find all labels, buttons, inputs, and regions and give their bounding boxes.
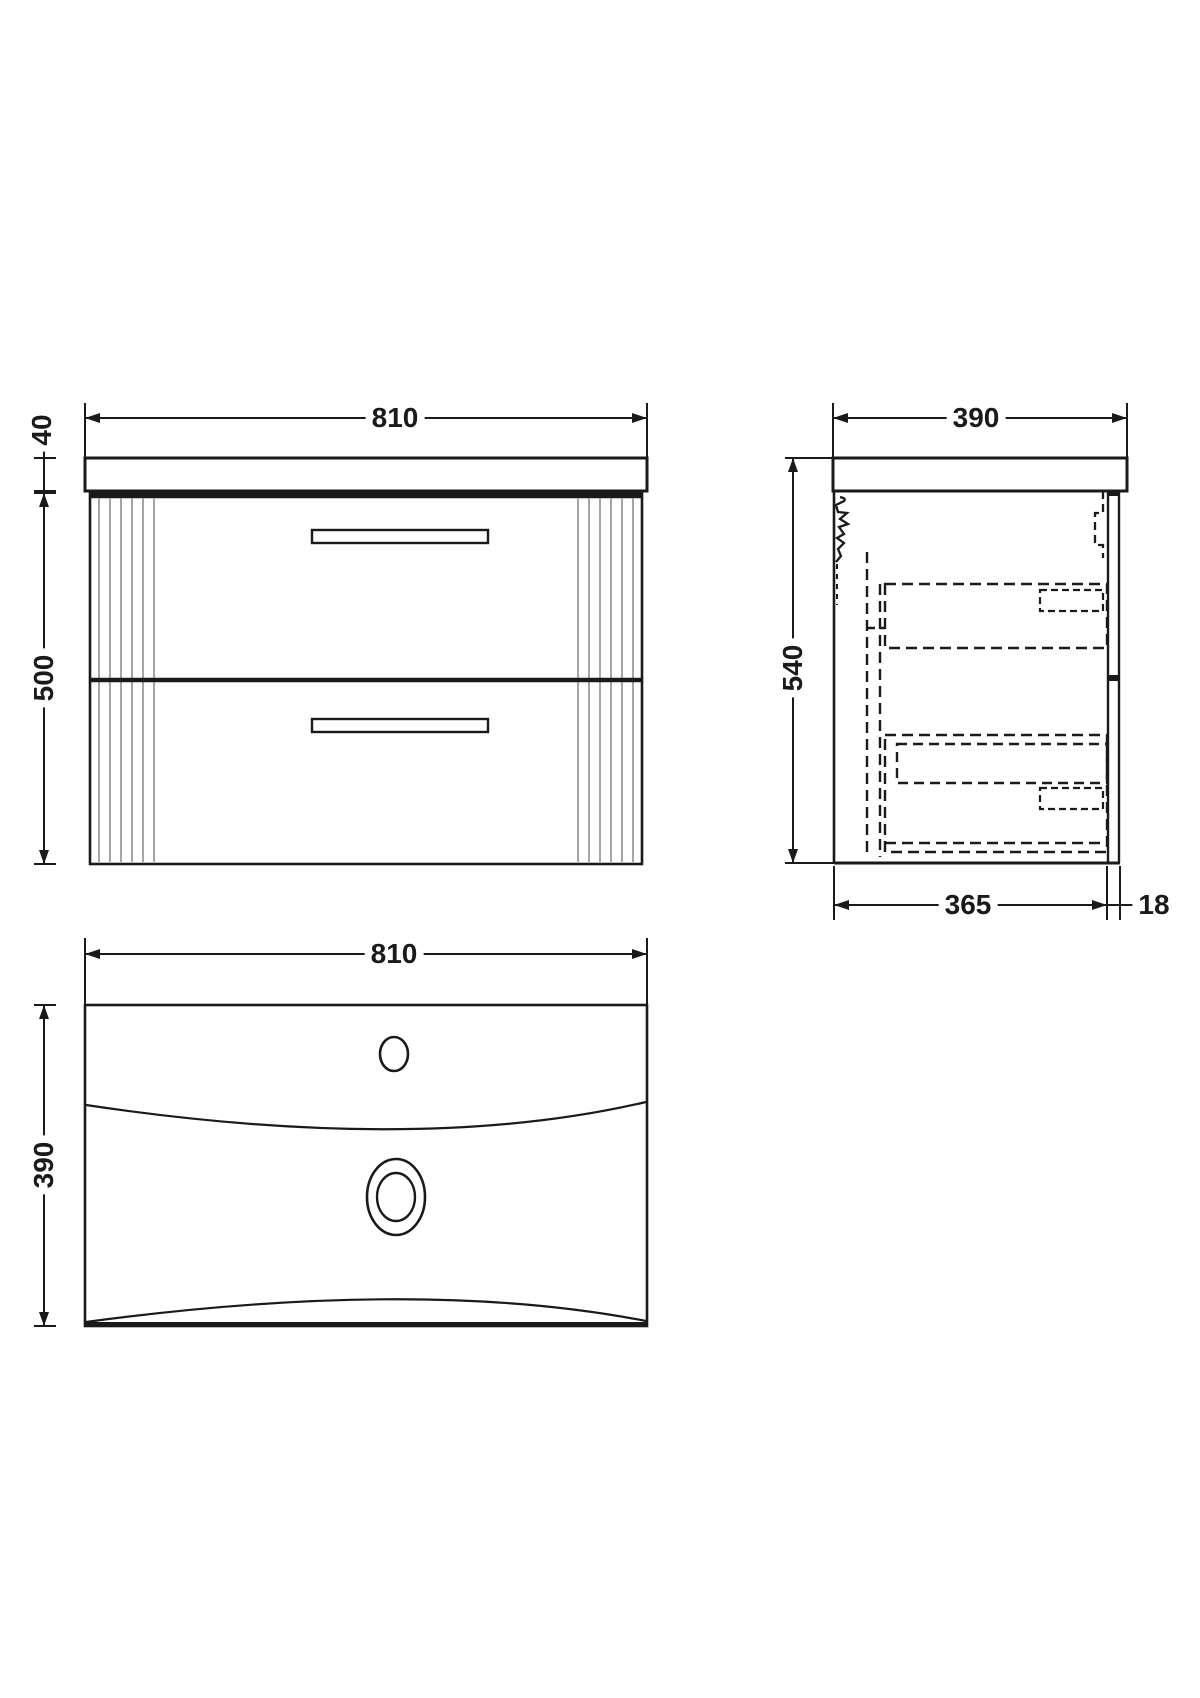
arrowhead bbox=[788, 849, 798, 863]
side-handle-profile bbox=[836, 497, 848, 562]
front-width-dimension-label: 810 bbox=[366, 403, 425, 433]
basin-depth-dimension-label: 390 bbox=[29, 1136, 59, 1195]
arrowhead bbox=[788, 458, 798, 472]
side-body-depth-dimension-label: 365 bbox=[939, 890, 998, 920]
lower-drawer-box-hidden bbox=[885, 735, 1107, 852]
side-drawer-boxes-hidden bbox=[867, 552, 1107, 857]
arrowhead bbox=[85, 949, 100, 959]
back-panel-joint bbox=[1107, 675, 1120, 681]
arrowhead bbox=[833, 413, 848, 423]
basin-width-dimension-label: 810 bbox=[365, 939, 424, 969]
side-view bbox=[785, 403, 1133, 920]
basin-view bbox=[34, 938, 647, 1326]
front-cabinet-height-dimension-label: 500 bbox=[29, 649, 59, 708]
side-back-panel bbox=[1107, 491, 1120, 863]
side-countertop bbox=[833, 458, 1127, 491]
back-panel-joint bbox=[1107, 491, 1120, 496]
side-height-dimension-label: 540 bbox=[778, 639, 808, 698]
arrowhead bbox=[1112, 413, 1127, 423]
arrowhead bbox=[39, 850, 49, 864]
side-wall-rail-hidden bbox=[1095, 491, 1103, 558]
arrowhead bbox=[39, 493, 49, 507]
front-top-drawer-handle bbox=[312, 530, 488, 543]
upper-drawer-box-hidden bbox=[885, 584, 1107, 648]
upper-drawer-runner-hidden bbox=[1040, 590, 1103, 611]
arrowhead bbox=[85, 413, 100, 423]
front-view bbox=[34, 403, 647, 864]
arrowhead bbox=[632, 413, 647, 423]
technical-drawing-canvas: 810 40 500 390 540 365 18 810 390 bbox=[0, 0, 1200, 1698]
lower-drawer-inner-hidden bbox=[897, 744, 1107, 783]
arrowhead bbox=[834, 900, 849, 910]
front-bottom-drawer-handle bbox=[312, 719, 488, 732]
arrowhead bbox=[39, 1005, 49, 1019]
arrowhead bbox=[39, 1312, 49, 1326]
side-depth-dimension-label: 390 bbox=[947, 403, 1006, 433]
front-counter-thickness-dimension-label: 40 bbox=[27, 408, 57, 451]
arrowhead bbox=[1092, 900, 1107, 910]
arrowhead bbox=[632, 949, 647, 959]
front-countertop bbox=[85, 458, 647, 491]
vanity-dimension-drawing bbox=[0, 0, 1200, 1698]
side-back-panel-dimension-label: 18 bbox=[1132, 890, 1175, 920]
basin-outline bbox=[85, 1005, 647, 1326]
lower-drawer-runner-hidden bbox=[1040, 788, 1103, 809]
